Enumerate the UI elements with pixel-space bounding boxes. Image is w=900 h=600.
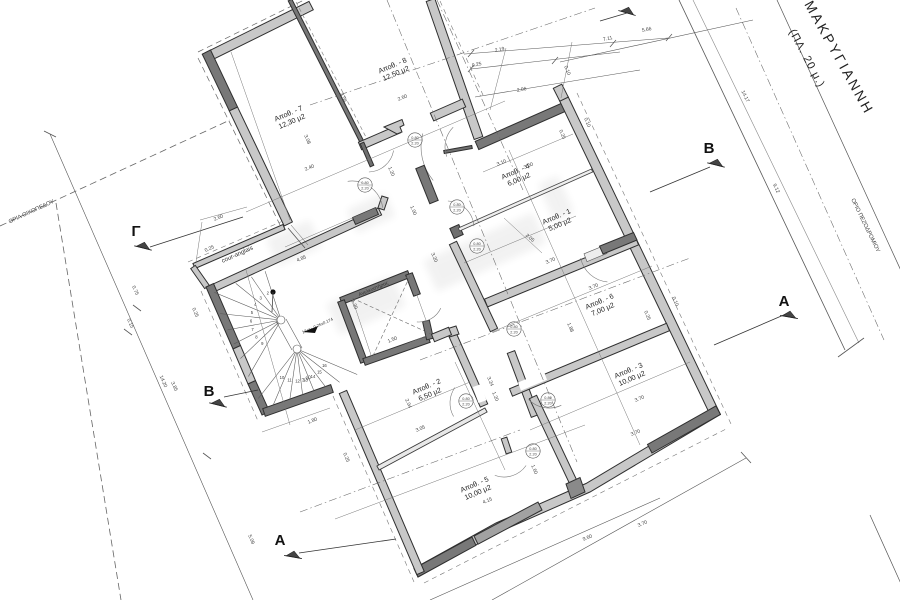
svg-text:A: A [779,293,790,310]
svg-text:0.80: 0.80 [529,447,536,451]
svg-text:11: 11 [287,378,292,383]
svg-text:B: B [704,140,715,157]
svg-text:A: A [275,532,286,549]
svg-text:0.80: 0.80 [411,136,418,140]
svg-text:0.80: 0.80 [453,203,460,207]
svg-text:2.20: 2.20 [473,248,480,252]
svg-text:2.20: 2.20 [462,403,469,407]
svg-text:2.20: 2.20 [529,453,536,457]
svg-text:0.80: 0.80 [462,397,469,401]
svg-text:10: 10 [280,375,285,380]
svg-text:16: 16 [322,363,327,368]
svg-text:Γ: Γ [131,223,140,240]
svg-text:0.80: 0.80 [361,181,368,185]
svg-text:2.20: 2.20 [544,402,551,406]
svg-text:12: 12 [295,378,300,383]
svg-text:2.20: 2.20 [453,209,460,213]
svg-text:2.20: 2.20 [510,331,517,335]
svg-text:0.80: 0.80 [473,242,480,246]
svg-text:15: 15 [317,369,322,374]
svg-text:B: B [204,383,215,400]
svg-text:2.20: 2.20 [411,142,418,146]
svg-text:2.20: 2.20 [361,187,368,191]
